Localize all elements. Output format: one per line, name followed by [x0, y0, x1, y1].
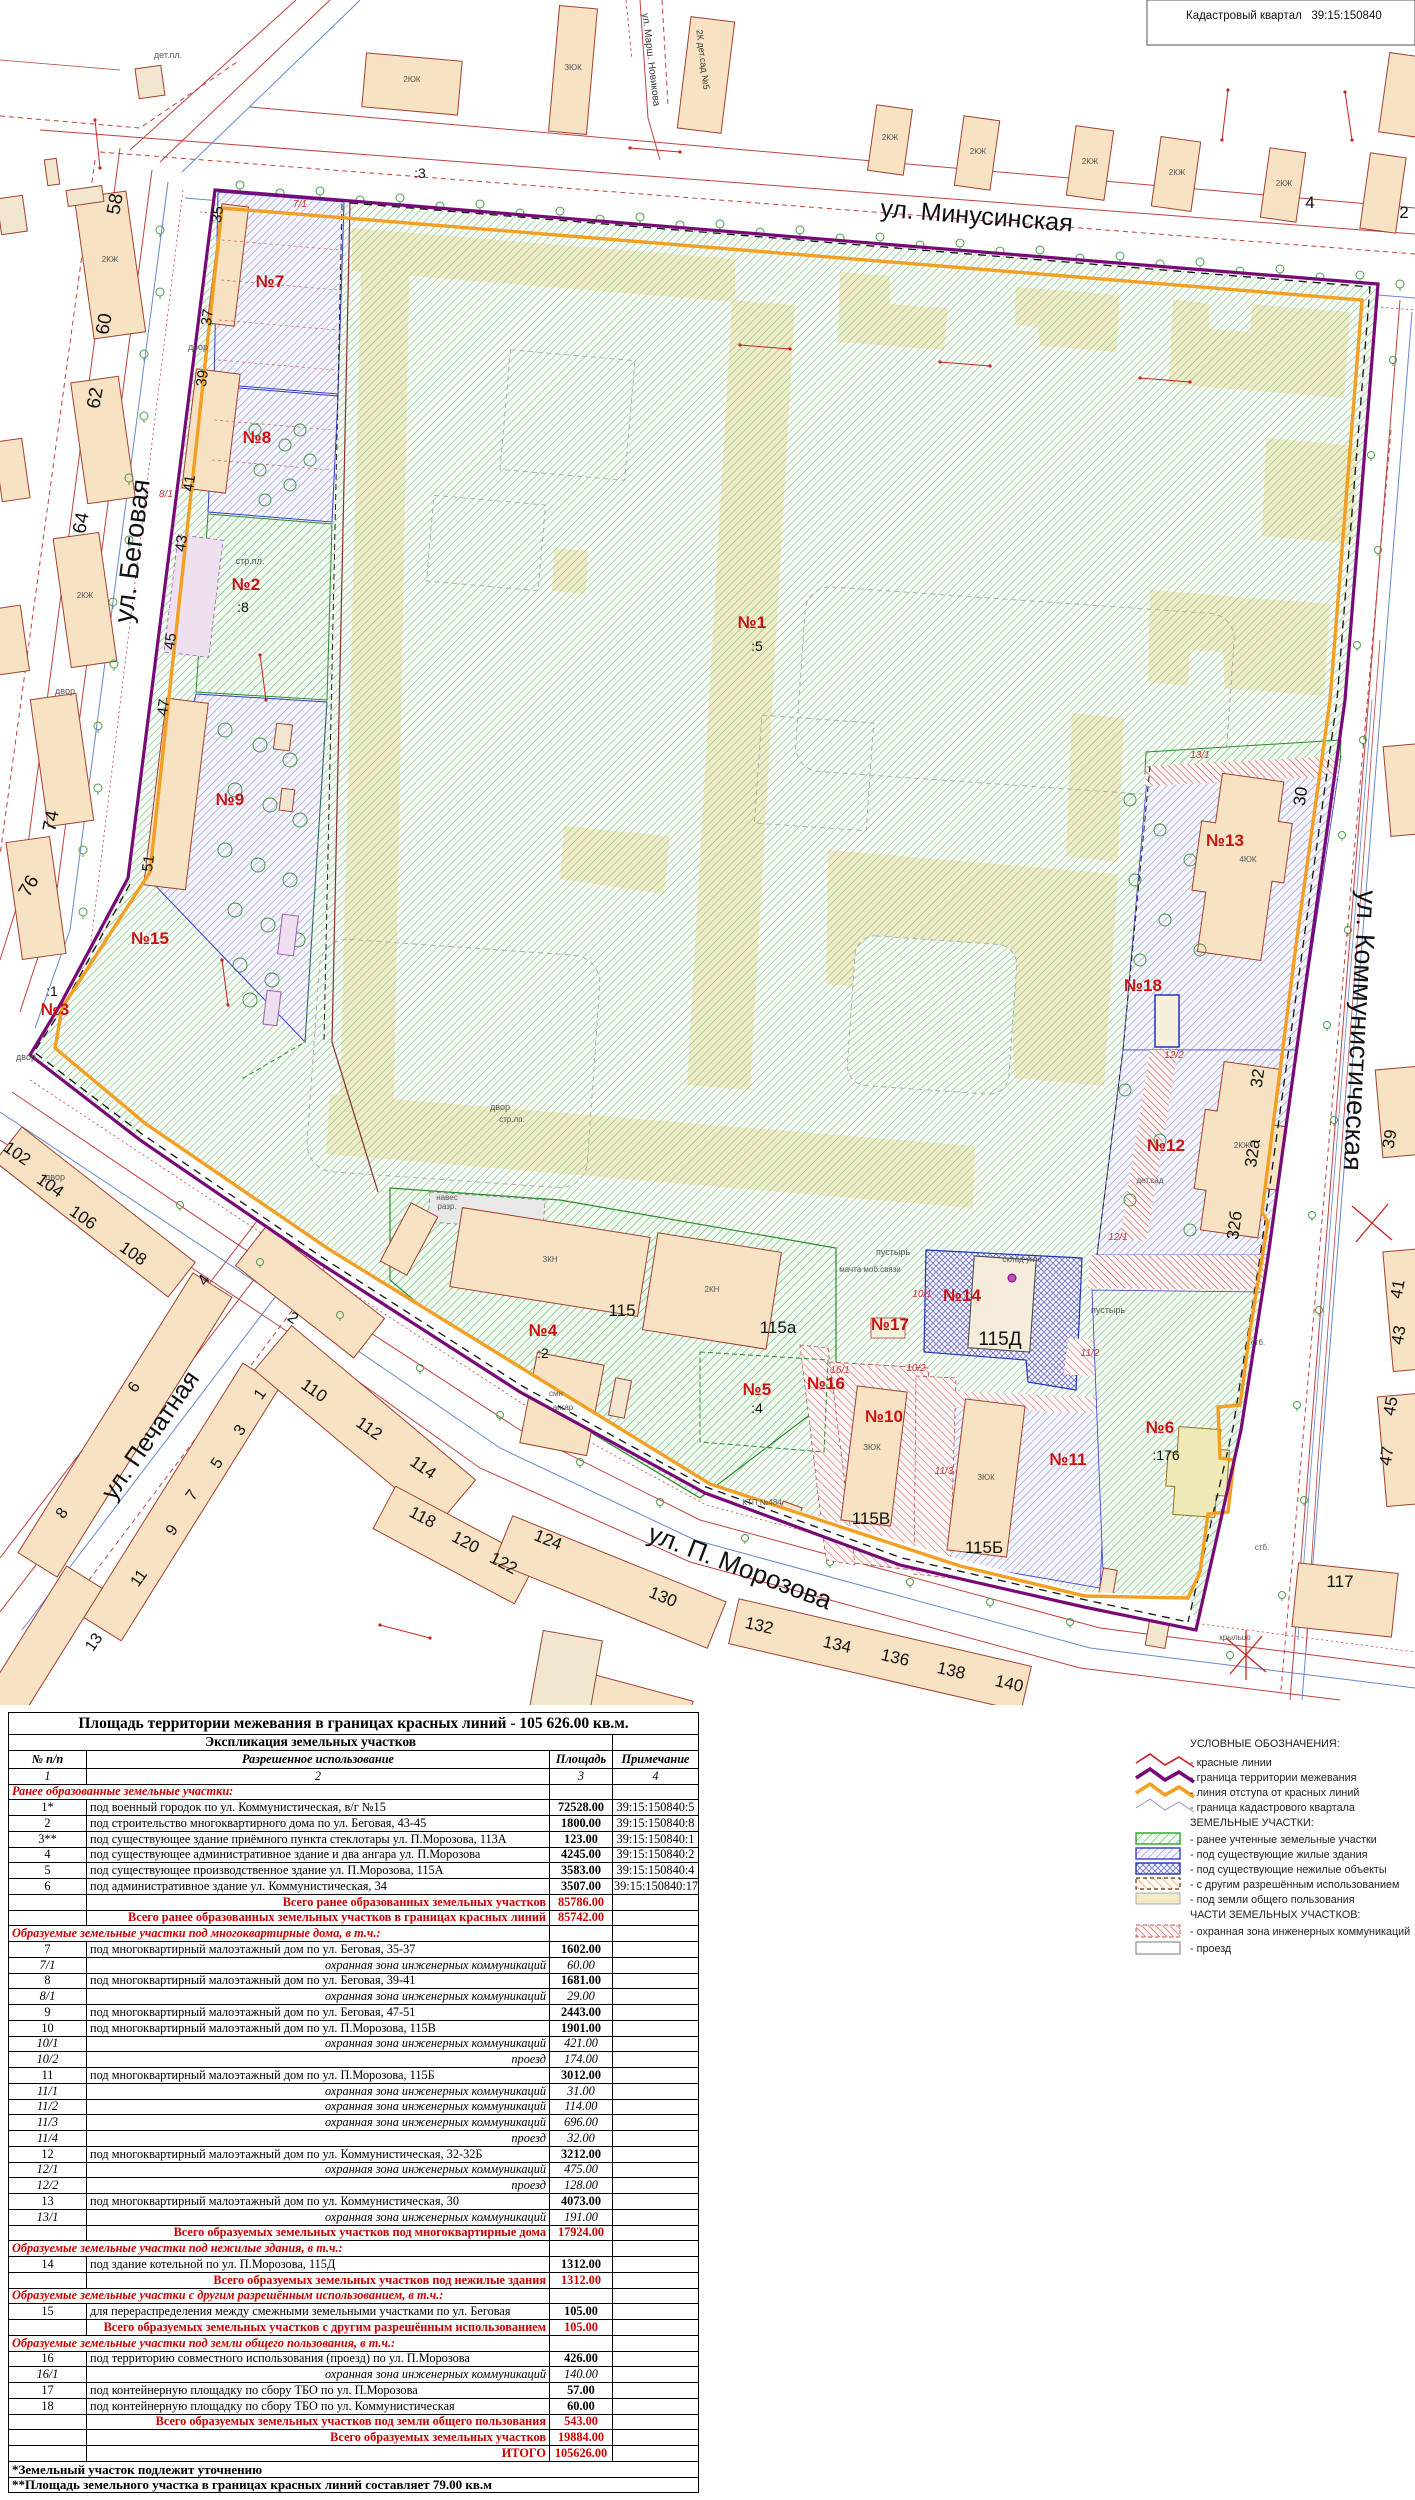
svg-text:30: 30 [1290, 786, 1311, 807]
svg-text:- граница кадастрового квартал: - граница кадастрового квартала [1190, 1802, 1355, 1814]
svg-text:2ЮК: 2ЮК [403, 75, 421, 84]
svg-text:№13: №13 [1206, 831, 1244, 850]
svg-text:- граница территории межевания: - граница территории межевания [1190, 1772, 1357, 1784]
svg-text:- ранее учтенные земельные уча: - ранее учтенные земельные участки [1190, 1834, 1377, 1846]
svg-text:41: 41 [180, 474, 199, 493]
svg-text:43: 43 [172, 534, 191, 553]
svg-text:47: 47 [1376, 1445, 1398, 1467]
svg-text:35: 35 [208, 205, 227, 224]
svg-text:39: 39 [1379, 1128, 1401, 1150]
svg-text:№8: №8 [243, 428, 271, 447]
svg-text:51: 51 [139, 854, 158, 873]
svg-text:№3: №3 [41, 1000, 69, 1019]
svg-text:№17: №17 [871, 1315, 909, 1334]
svg-text:16/1: 16/1 [830, 1365, 849, 1376]
svg-text:Кадастровый квартал 39:15:15: Кадастровый квартал 39:15:150840 [1186, 10, 1382, 22]
svg-text:смн: смн [549, 1389, 563, 1398]
svg-text:39: 39 [193, 369, 212, 388]
svg-text:32: 32 [1247, 1068, 1268, 1089]
svg-text:2КЖ: 2КЖ [970, 147, 987, 156]
svg-text:№7: №7 [256, 272, 284, 291]
svg-text:пустырь: пустырь [876, 1247, 910, 1257]
svg-text::8: :8 [237, 599, 249, 615]
svg-text:58: 58 [103, 192, 127, 216]
svg-text:№10: №10 [865, 1407, 903, 1426]
svg-text:- с другим разрешённым использ: - с другим разрешённым использованием [1190, 1879, 1399, 1891]
svg-text:115В: 115В [852, 1509, 890, 1528]
svg-text:2КЖ: 2КЖ [1169, 168, 1186, 177]
svg-text:115Б: 115Б [965, 1538, 1003, 1557]
svg-text:45: 45 [1380, 1395, 1402, 1417]
svg-text:117: 117 [1326, 1572, 1353, 1591]
svg-text:115: 115 [608, 1301, 635, 1320]
svg-text:2КЖ: 2КЖ [882, 133, 899, 142]
svg-text:13/1: 13/1 [1190, 750, 1209, 761]
svg-text:ЧАСТИ ЗЕМЕЛЬНЫХ УЧАСТКОВ:: ЧАСТИ ЗЕМЕЛЬНЫХ УЧАСТКОВ: [1190, 1909, 1360, 1921]
svg-text:стр.лп.: стр.лп. [499, 1115, 525, 1124]
svg-text:2КЖ: 2КЖ [1082, 157, 1099, 166]
svg-text:№6: №6 [1146, 1418, 1174, 1437]
svg-text:№11: №11 [1050, 1450, 1087, 1469]
svg-text:2: 2 [1399, 203, 1408, 222]
svg-text:двор: двор [490, 1102, 510, 1112]
svg-text:ангар: ангар [553, 1403, 574, 1412]
svg-text:115а: 115а [760, 1318, 797, 1337]
svg-text:двор: двор [45, 1172, 65, 1182]
svg-text:11/3: 11/3 [935, 1466, 954, 1477]
svg-text:двор: двор [55, 686, 75, 696]
svg-text:2КЖ: 2КЖ [77, 591, 94, 600]
svg-text:- охранная зона инженерных ком: - охранная зона инженерных коммуникаций [1190, 1926, 1410, 1938]
svg-text:КТП №484: КТП №484 [742, 1498, 782, 1507]
svg-text:№12: №12 [1147, 1136, 1185, 1155]
svg-text:№9: №9 [216, 790, 244, 809]
svg-text:- под земли общего пользования: - под земли общего пользования [1190, 1894, 1355, 1906]
svg-text:ЗЕМЕЛЬНЫЕ УЧАСТКИ:: ЗЕМЕЛЬНЫЕ УЧАСТКИ: [1190, 1817, 1314, 1829]
svg-text:60: 60 [92, 312, 116, 336]
svg-text:навес: навес [436, 1193, 457, 1202]
svg-text:№14: №14 [943, 1286, 981, 1305]
svg-text:- красные линии: - красные линии [1190, 1757, 1272, 1769]
svg-text:№1: №1 [738, 613, 766, 632]
svg-text:41: 41 [1387, 1278, 1409, 1300]
svg-text:ЗЮК: ЗЮК [863, 1443, 881, 1452]
svg-text:пустырь: пустырь [1091, 1305, 1125, 1315]
svg-text:64: 64 [69, 510, 93, 535]
svg-text:ЗЮК: ЗЮК [977, 1473, 995, 1482]
svg-text:8/1: 8/1 [159, 489, 173, 500]
svg-text::5: :5 [751, 638, 763, 654]
svg-text:32б: 32б [1223, 1209, 1246, 1240]
svg-text:№16: №16 [807, 1374, 845, 1393]
svg-text:стб.: стб. [1255, 1543, 1269, 1552]
svg-text:№4: №4 [529, 1321, 558, 1340]
svg-text:№2: №2 [232, 575, 260, 594]
svg-text:74: 74 [39, 808, 63, 833]
svg-text:4ЮК: 4ЮК [1239, 855, 1257, 864]
svg-text:- проезд: - проезд [1190, 1943, 1232, 1955]
svg-text:2КЖ: 2КЖ [102, 255, 119, 264]
svg-text:дет.сад: дет.сад [1137, 1176, 1164, 1185]
svg-text:10/1: 10/1 [912, 1289, 931, 1300]
svg-text::176: :176 [1152, 1447, 1179, 1463]
svg-text::2: :2 [537, 1345, 549, 1361]
svg-text:10/2: 10/2 [906, 1363, 926, 1374]
svg-text:разр.: разр. [437, 1202, 456, 1211]
svg-text:2КЖ: 2КЖ [1234, 1141, 1251, 1150]
svg-text:- под существующие нежилые объ: - под существующие нежилые объекты [1190, 1864, 1387, 1876]
svg-text:45: 45 [161, 632, 180, 651]
svg-text:12/2: 12/2 [1164, 1050, 1184, 1061]
svg-text:№18: №18 [1124, 976, 1162, 995]
svg-text:11/2: 11/2 [1081, 1348, 1100, 1359]
svg-text:склад угля: склад угля [1002, 1255, 1041, 1264]
svg-text:43: 43 [1388, 1324, 1410, 1346]
svg-text:7/1: 7/1 [293, 199, 307, 210]
svg-text:мачта моб.связи: мачта моб.связи [839, 1265, 901, 1274]
svg-text:УСЛОВНЫЕ ОБОЗНАЧЕНИЯ:: УСЛОВНЫЕ ОБОЗНАЧЕНИЯ: [1190, 1738, 1340, 1750]
svg-text:двор: двор [188, 342, 208, 352]
svg-text:62: 62 [83, 386, 107, 410]
svg-text::3: :3 [414, 165, 426, 181]
svg-text:115Д: 115Д [978, 1329, 1021, 1350]
svg-text:2КЖ: 2КЖ [1276, 179, 1293, 188]
svg-text:37: 37 [198, 308, 217, 327]
svg-text:№5: №5 [743, 1380, 771, 1399]
svg-text:ЗКН: ЗКН [542, 1255, 557, 1264]
svg-text:стб.: стб. [1251, 1338, 1265, 1347]
svg-text::1: :1 [46, 983, 58, 999]
svg-text:двор: двор [16, 1052, 36, 1062]
svg-text:4: 4 [1305, 193, 1314, 212]
svg-text:стр.пл.: стр.пл. [236, 556, 265, 566]
svg-text:47: 47 [154, 698, 173, 717]
svg-text:ЗЮК: ЗЮК [564, 63, 582, 72]
svg-text:дет.пл.: дет.пл. [154, 50, 182, 60]
svg-text::4: :4 [751, 1400, 763, 1416]
svg-text:№15: №15 [131, 929, 169, 948]
svg-text:- под существующие жилые здани: - под существующие жилые здания [1190, 1849, 1368, 1861]
svg-text:12/1: 12/1 [1108, 1232, 1127, 1243]
svg-text:2КН: 2КН [705, 1285, 720, 1294]
svg-text:- линия отступа от красных лин: - линия отступа от красных линий [1190, 1787, 1359, 1799]
